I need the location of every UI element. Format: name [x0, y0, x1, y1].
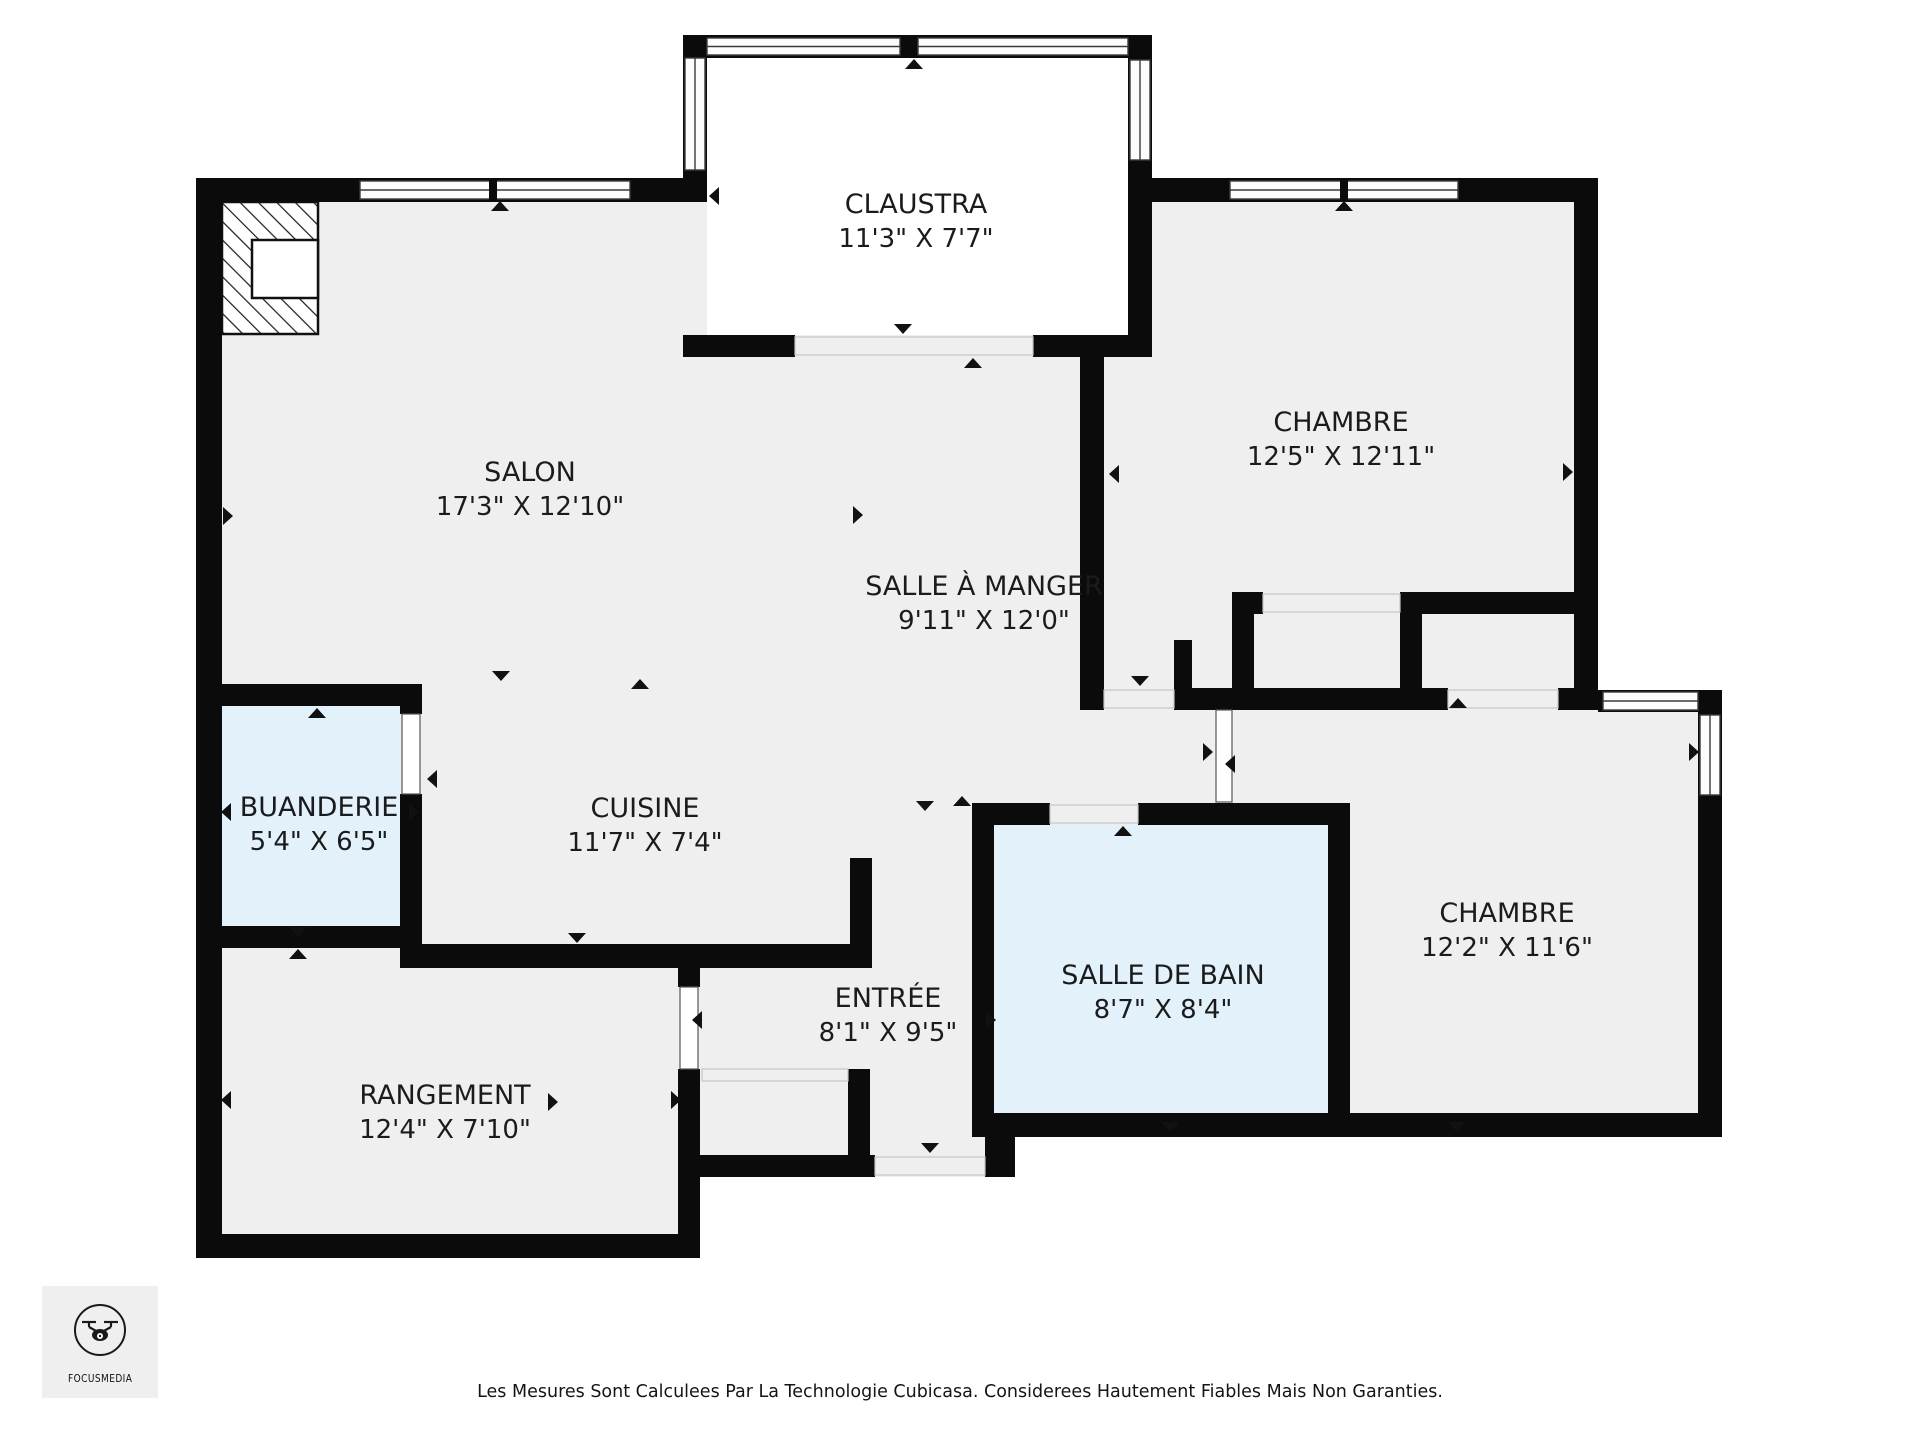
room-dimensions: 11'3" X 7'7"	[838, 222, 993, 256]
room-dimensions: 8'7" X 8'4"	[1061, 993, 1264, 1027]
room-label-salle-de-bain: SALLE DE BAIN 8'7" X 8'4"	[1061, 959, 1264, 1027]
room-label-cuisine: CUISINE 11'7" X 7'4"	[567, 792, 722, 860]
room-dimensions: 12'2" X 11'6"	[1421, 931, 1593, 965]
room-name: ENTRÉE	[819, 982, 958, 1016]
room-name: CHAMBRE	[1421, 897, 1593, 931]
measurement-disclaimer: Les Mesures Sont Calculees Par La Techno…	[477, 1382, 1443, 1402]
room-label-claustra: CLAUSTRA 11'3" X 7'7"	[838, 188, 993, 256]
room-dimensions: 17'3" X 12'10"	[436, 490, 624, 524]
room-dimensions: 12'5" X 12'11"	[1247, 440, 1435, 474]
room-name: BUANDERIE	[240, 791, 399, 825]
room-dimensions: 9'11" X 12'0"	[865, 604, 1103, 638]
room-name: CLAUSTRA	[838, 188, 993, 222]
room-name: RANGEMENT	[359, 1079, 531, 1113]
room-label-buanderie: BUANDERIE 5'4" X 6'5"	[240, 791, 399, 859]
photographer-logo: FOCUSMEDIA	[42, 1286, 158, 1398]
room-name: SALLE DE BAIN	[1061, 959, 1264, 993]
room-label-chambre-2: CHAMBRE 12'2" X 11'6"	[1421, 897, 1593, 965]
room-dimensions: 12'4" X 7'10"	[359, 1113, 531, 1147]
logo-brand-text: FOCUSMEDIA	[68, 1372, 132, 1385]
room-label-salon: SALON 17'3" X 12'10"	[436, 456, 624, 524]
room-dimensions: 11'7" X 7'4"	[567, 826, 722, 860]
room-label-rangement: RANGEMENT 12'4" X 7'10"	[359, 1079, 531, 1147]
room-name: SALON	[436, 456, 624, 490]
room-label-chambre-1: CHAMBRE 12'5" X 12'11"	[1247, 406, 1435, 474]
room-name: CHAMBRE	[1247, 406, 1435, 440]
room-name: SALLE À MANGER	[865, 570, 1103, 604]
room-name: CUISINE	[567, 792, 722, 826]
room-label-entree: ENTRÉE 8'1" X 9'5"	[819, 982, 958, 1050]
room-label-salle-a-manger: SALLE À MANGER 9'11" X 12'0"	[865, 570, 1103, 638]
room-dimensions: 5'4" X 6'5"	[240, 825, 399, 859]
fireplace-hatch	[222, 202, 318, 334]
room-dimensions: 8'1" X 9'5"	[819, 1016, 958, 1050]
floor-plan-page: CLAUSTRA 11'3" X 7'7" SALON 17'3" X 12'1…	[0, 0, 1920, 1440]
drone-icon	[42, 1286, 158, 1374]
